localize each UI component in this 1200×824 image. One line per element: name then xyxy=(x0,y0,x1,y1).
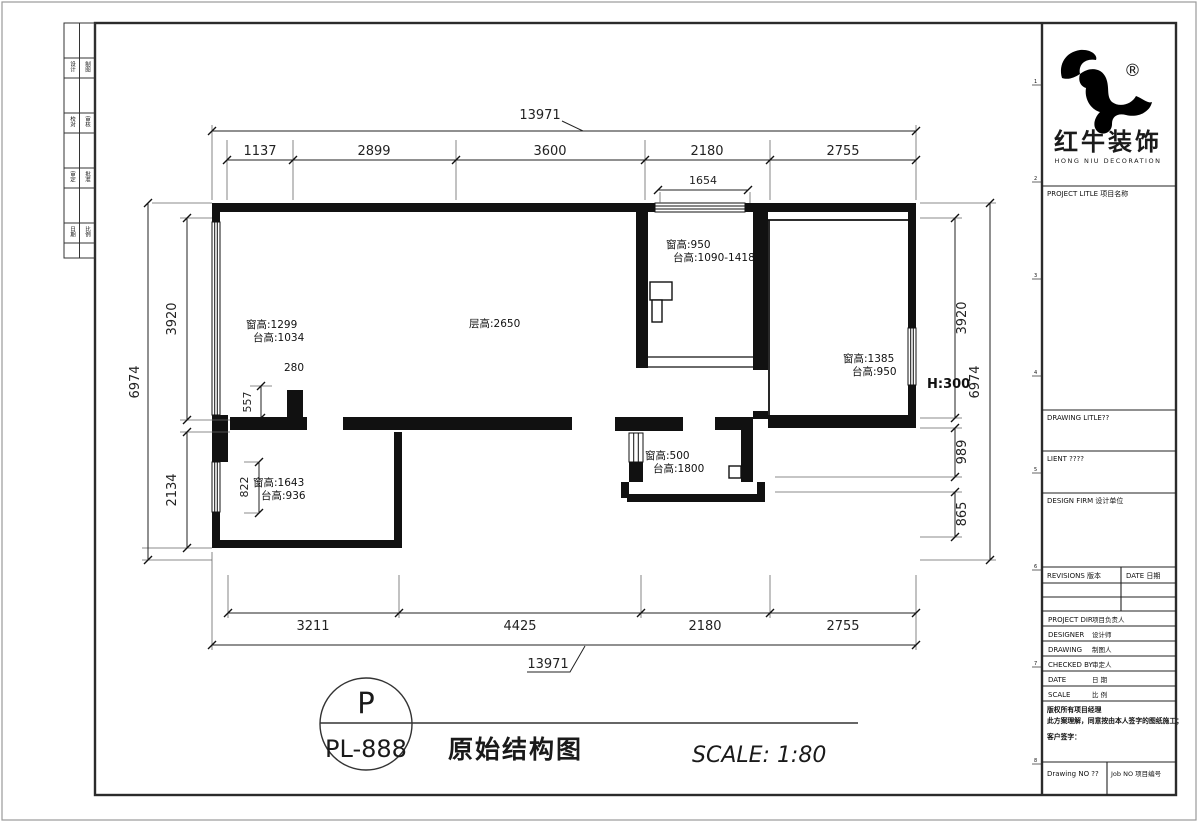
page-frame xyxy=(2,2,1196,820)
dim-label: 822 xyxy=(238,477,251,498)
window-note: 台高:936 xyxy=(261,489,306,502)
dim-label: 3600 xyxy=(533,144,566,159)
brand-name-cn: 红牛装饰 xyxy=(1054,128,1162,156)
title-block: ® 红牛装饰 HONG NIU DECORATION PROJECT LITLE… xyxy=(1032,50,1183,795)
dimensions: 13971 1137 2899 3600 2180 2755 1654 3211… xyxy=(128,108,996,672)
window-right xyxy=(908,328,916,385)
plan-annotations: 窗高:1299 台高:1034 280 窗高:1643 台高:936 层高:26… xyxy=(246,238,970,502)
hongniu-logo: ® 红牛装饰 HONG NIU DECORATION xyxy=(1054,50,1162,165)
step-height-note: H:300 xyxy=(927,377,970,392)
row-label-en: DESIGNER xyxy=(1048,631,1084,639)
field-client: LIENT ???? xyxy=(1047,455,1084,463)
window-middle-small xyxy=(629,433,643,462)
dim-label: 2899 xyxy=(357,144,390,159)
row-label-en: SCALE xyxy=(1048,691,1070,699)
sheet-title-group: P PL-888 原始结构图 SCALE: 1:80 xyxy=(320,678,858,770)
flue-fixture xyxy=(650,282,672,300)
edge-mark-number: 1 xyxy=(1034,79,1037,85)
beam-note: 280 xyxy=(284,362,304,374)
window-note: 窗高:500 xyxy=(645,449,690,462)
registered-mark: ® xyxy=(1124,61,1141,81)
strip-cell-label: 审核 xyxy=(84,115,91,129)
row-label-cn: 审定人 xyxy=(1092,660,1112,669)
outer-border xyxy=(2,2,1196,820)
dim-label: 2180 xyxy=(690,144,723,159)
window-note: 台高:950 xyxy=(852,365,897,378)
row-label-cn: 设计师 xyxy=(1092,630,1112,639)
ceiling-height-note: 层高:2650 xyxy=(469,317,520,330)
drawing-canvas: 设计 制图 校对 审核 审定 批准 日期 比例 xyxy=(0,0,1200,824)
strip-cell-label: 日期 xyxy=(69,226,76,239)
window-left-upper xyxy=(212,222,220,415)
dim-label: 13971 xyxy=(527,657,568,672)
strip-cell-label: 制图 xyxy=(84,60,91,74)
sheet-code: PL-888 xyxy=(325,735,407,763)
field-design-firm: DESIGN FIRM 设计单位 xyxy=(1047,496,1123,505)
revisions-header: REVISIONS 版本 xyxy=(1047,571,1101,580)
flue-fixture xyxy=(652,300,662,322)
row-label-cn: 比 例 xyxy=(1092,690,1107,699)
window-left-lower xyxy=(212,462,220,512)
scale-label: SCALE: 1:80 xyxy=(692,743,826,768)
window-note: 台高:1034 xyxy=(253,331,305,344)
window-note: 台高:1800 xyxy=(653,462,704,475)
window-note: 窗高:1299 xyxy=(246,318,297,331)
bull-icon xyxy=(1079,69,1152,134)
row-label-en: CHECKED BY xyxy=(1048,661,1094,669)
date-header: DATE 日期 xyxy=(1126,572,1160,580)
row-label-en: DATE xyxy=(1048,676,1066,684)
window-note: 窗高:950 xyxy=(666,238,711,251)
edge-mark-number: 2 xyxy=(1034,176,1037,182)
job-no-label: Job NO 项目编号 xyxy=(1110,769,1162,778)
row-label-en: DRAWING xyxy=(1048,646,1082,654)
dim-label: 13971 xyxy=(519,108,560,123)
dim-label: 1654 xyxy=(689,174,717,187)
right-room-inner-walls xyxy=(768,220,908,415)
floor-plan xyxy=(212,203,916,548)
window-note: 窗高:1385 xyxy=(843,352,894,365)
strip-cell-label: 批准 xyxy=(84,170,91,184)
dim-label: 557 xyxy=(241,392,254,413)
dim-label: 3920 xyxy=(955,301,970,334)
dim-label: 2180 xyxy=(688,619,721,634)
edge-mark-number: 7 xyxy=(1034,661,1037,667)
field-project-title: PROJECT LITLE 项目名称 xyxy=(1047,189,1128,198)
row-label-en: PROJECT DIR xyxy=(1048,616,1093,624)
sheet-letter: P xyxy=(357,686,375,720)
row-label-cn: 项目负责人 xyxy=(1092,615,1125,624)
dim-label: 1137 xyxy=(243,144,276,159)
edge-mark-number: 8 xyxy=(1034,758,1037,764)
row-label-cn: 日 期 xyxy=(1092,676,1108,684)
edge-marks: 1 2 3 4 5 6 7 8 xyxy=(1032,79,1042,764)
dim-label: 3920 xyxy=(165,302,180,335)
dim-label: 6974 xyxy=(128,365,143,398)
walls xyxy=(212,203,916,548)
strip-cell-label: 审定 xyxy=(69,170,76,184)
strip-cell-label: 校对 xyxy=(69,115,76,128)
window-note: 台高:1090-1418 xyxy=(673,251,755,264)
agreement-note: 此方案理解，同意按由本人签字的图纸施工； xyxy=(1047,716,1183,725)
edge-mark-number: 3 xyxy=(1034,273,1037,279)
corner-notch xyxy=(729,466,741,478)
window-top xyxy=(655,203,745,212)
dim-label: 3211 xyxy=(296,619,329,634)
copyright-note: 版权所有项目经理 xyxy=(1046,705,1102,714)
dim-label: 865 xyxy=(955,502,970,527)
margin-strip: 设计 制图 校对 审核 审定 批准 日期 比例 xyxy=(64,23,95,258)
dim-label: 989 xyxy=(955,440,970,465)
dim-label: 2755 xyxy=(826,619,859,634)
title-block-lines xyxy=(1042,186,1176,795)
dim-label: 6974 xyxy=(968,365,983,398)
strip-cell-label: 比例 xyxy=(84,225,91,239)
balcony-edge-lines xyxy=(648,357,753,367)
strip-cell-label: 设计 xyxy=(69,60,76,74)
dim-label: 2755 xyxy=(826,144,859,159)
row-label-cn: 制图人 xyxy=(1092,645,1112,654)
edge-mark-number: 5 xyxy=(1034,467,1037,473)
field-drawing-title: DRAWING LITLE?? xyxy=(1047,414,1110,422)
dim-label: 2134 xyxy=(165,473,180,506)
brand-name-en: HONG NIU DECORATION xyxy=(1055,157,1162,165)
edge-mark-number: 4 xyxy=(1034,370,1037,376)
dim-label: 4425 xyxy=(503,619,536,634)
customer-sign-label: 客户签字： xyxy=(1046,732,1081,741)
edge-mark-number: 6 xyxy=(1034,564,1037,570)
window-note: 窗高:1643 xyxy=(253,476,304,489)
drawing-sheet: 设计 制图 校对 审核 审定 批准 日期 比例 xyxy=(0,0,1200,824)
main-frame xyxy=(95,23,1176,795)
sheet-title: 原始结构图 xyxy=(448,735,583,764)
drawing-no-label: Drawing NO ?? xyxy=(1047,770,1099,778)
